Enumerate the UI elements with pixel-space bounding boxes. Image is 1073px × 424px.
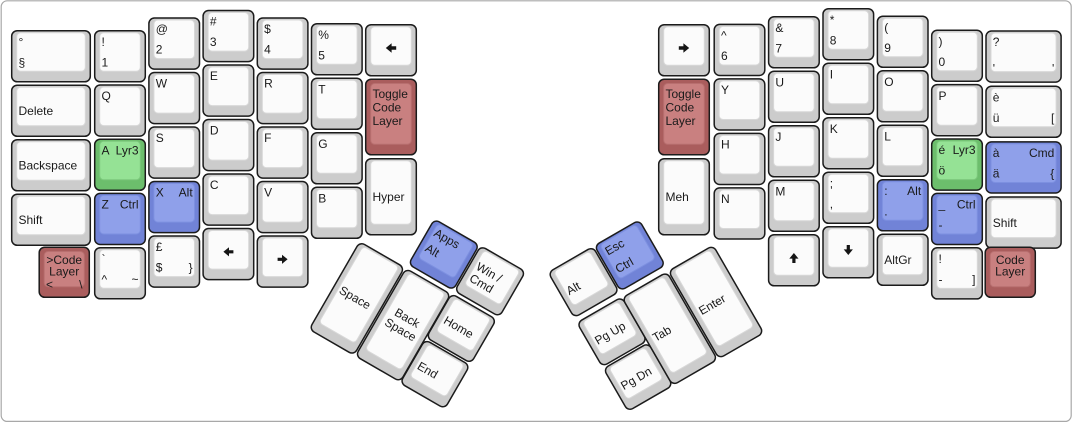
svg-text:-: - [939,218,943,232]
svg-text:Shift: Shift [19,213,44,227]
svg-text:': ' [993,62,995,76]
svg-text:E: E [210,69,218,83]
svg-text:I: I [830,67,833,81]
svg-text:Toggle: Toggle [373,87,409,101]
svg-text::: : [884,184,887,198]
svg-text:é: é [939,143,946,157]
svg-text:!: ! [102,35,105,49]
svg-text:£: £ [156,240,163,254]
svg-text:@: @ [156,22,168,36]
svg-text:U: U [775,75,784,89]
svg-text:Q: Q [102,89,111,103]
svg-text:T: T [318,82,326,96]
svg-text:Lyr3: Lyr3 [116,143,139,157]
svg-text:~: ~ [131,272,138,286]
svg-text:W: W [156,77,168,91]
svg-text:4: 4 [264,43,271,57]
svg-text:.: . [884,204,887,218]
svg-text:Z: Z [102,198,109,212]
svg-text:Lyr3: Lyr3 [953,143,976,157]
svg-text:7: 7 [775,41,782,55]
svg-text:Layer: Layer [666,114,696,128]
svg-text:§: § [19,55,26,69]
svg-text:°: ° [19,35,24,49]
svg-text:ö: ö [939,164,946,178]
svg-text:(: ( [884,20,888,34]
svg-text:-: - [939,272,943,286]
svg-text:N: N [721,192,730,206]
svg-text:^: ^ [102,272,108,286]
svg-text:!: ! [939,252,942,266]
svg-text:Ctrl: Ctrl [120,198,139,212]
svg-text:`: ` [102,252,106,266]
svg-text:V: V [264,186,272,200]
svg-text:B: B [318,191,326,205]
svg-text:;: ; [830,176,833,190]
svg-text:Code: Code [666,100,695,114]
svg-text:A: A [102,143,110,157]
svg-text:à: à [993,146,1000,160]
svg-text:Layer: Layer [49,265,79,279]
svg-text:^: ^ [721,29,727,43]
svg-text:ü: ü [993,111,1000,125]
svg-text:Delete: Delete [19,104,54,118]
svg-text:': ' [1052,62,1054,76]
svg-text:Layer: Layer [373,114,403,128]
svg-text:]: ] [972,272,975,286]
svg-text:Cmd: Cmd [1029,146,1054,160]
svg-text:ä: ä [993,167,1000,181]
svg-text:2: 2 [156,43,163,57]
svg-text:D: D [210,124,219,138]
svg-text:$: $ [264,22,271,36]
svg-text:R: R [264,77,273,91]
svg-text:Layer: Layer [995,265,1025,279]
svg-text:}: } [189,261,193,275]
svg-text:_: _ [938,198,946,212]
svg-text:K: K [830,122,838,136]
svg-text:%: % [318,28,329,42]
svg-text:&: & [775,21,783,35]
svg-text:8: 8 [830,33,837,47]
svg-text:Alt: Alt [179,186,194,200]
svg-text:Alt: Alt [907,184,922,198]
svg-text:X: X [156,186,164,200]
svg-text:3: 3 [210,35,217,49]
svg-text:L: L [884,129,891,143]
svg-text:Toggle: Toggle [666,87,702,101]
svg-text:H: H [721,138,730,152]
svg-text:1: 1 [102,55,109,69]
svg-text:Shift: Shift [993,216,1018,230]
svg-text:Backspace: Backspace [19,159,78,173]
svg-text:AltGr: AltGr [884,253,911,267]
svg-text:?: ? [993,35,1000,49]
svg-text:$: $ [156,261,163,275]
svg-text:Meh: Meh [666,190,689,204]
svg-text:*: * [830,13,835,27]
svg-text:<: < [46,278,53,292]
svg-text:9: 9 [884,41,891,55]
svg-text:0: 0 [939,55,946,69]
svg-text:5: 5 [318,48,325,62]
svg-text:Y: Y [721,83,729,97]
svg-text:#: # [210,15,217,29]
svg-text:M: M [775,184,785,198]
svg-text:,: , [830,197,833,211]
svg-text:{: { [1050,167,1054,181]
svg-text:P: P [939,89,947,103]
svg-text:S: S [156,131,164,145]
svg-text:J: J [775,130,781,144]
svg-text:6: 6 [721,49,728,63]
svg-text:G: G [318,137,327,151]
svg-text:Code: Code [373,100,402,114]
svg-text:O: O [884,75,893,89]
svg-text:è: è [993,90,1000,104]
svg-text:F: F [264,131,271,145]
svg-text:): ) [939,34,943,48]
svg-text:C: C [210,178,219,192]
svg-text:Hyper: Hyper [373,190,405,204]
svg-text:Ctrl: Ctrl [957,198,976,212]
